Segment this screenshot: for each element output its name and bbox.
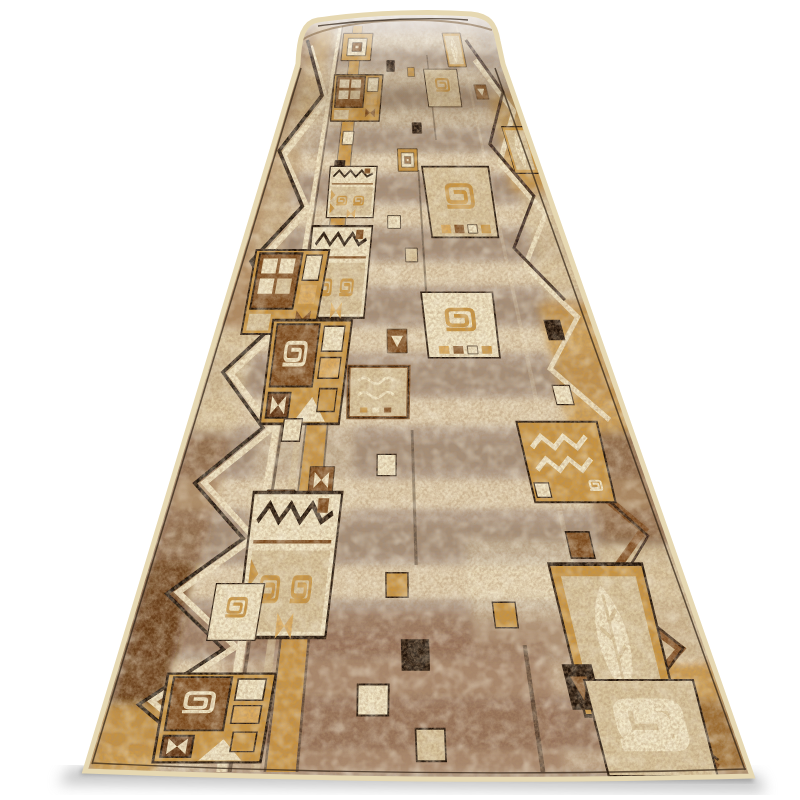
rug-runner-photo [0, 0, 800, 800]
roll-curl-shade [265, 55, 535, 135]
product-image-stage [0, 0, 800, 800]
rug-runner-svg [0, 0, 800, 800]
